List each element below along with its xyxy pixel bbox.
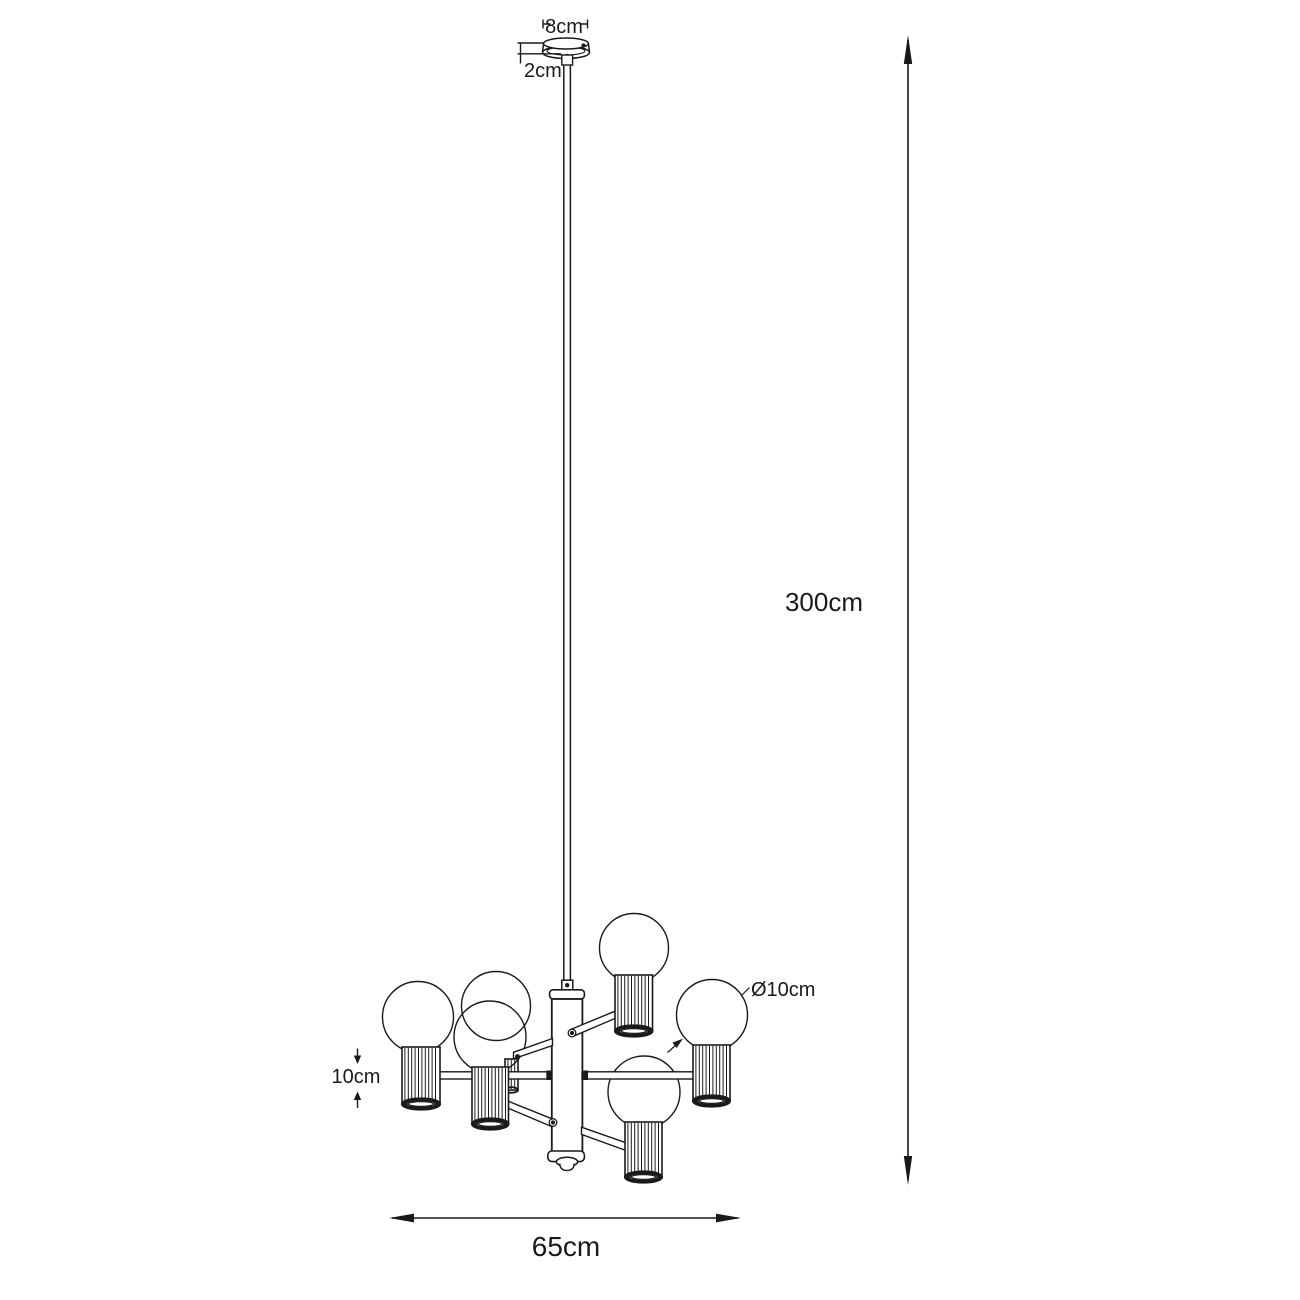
dim-300cm-arrow-up — [904, 35, 912, 64]
dim-65cm-label: 65cm — [532, 1231, 600, 1262]
arm-lower-pin — [551, 1120, 555, 1124]
technical-drawing-canvas: 8cm 2cm 300cm 65cm 10cm Ø10cm — [0, 0, 1300, 1300]
annotation-bulb-diameter: Ø10cm — [668, 979, 816, 1053]
shade-body — [693, 1045, 730, 1101]
suspension-rod — [564, 64, 571, 981]
central-body — [548, 980, 585, 1170]
dim-8cm-label: 8cm — [545, 16, 583, 38]
shade-top — [615, 975, 653, 1037]
shade-rim-inner — [700, 1099, 724, 1104]
shade-rim-inner — [409, 1102, 434, 1107]
body-tube — [552, 999, 583, 1152]
shade-body — [402, 1047, 440, 1104]
bulb-right — [677, 980, 748, 1051]
dim-2cm-label: 2cm — [524, 60, 562, 82]
dim-10cm-arrow-bottom — [354, 1092, 361, 1101]
arm-rear-pin — [515, 1054, 520, 1059]
dim-65cm-arrow-right — [716, 1214, 741, 1223]
dim-fixture-width: 65cm — [389, 1214, 741, 1262]
bulb-top — [600, 914, 669, 983]
dim-diameter-label: Ø10cm — [751, 979, 815, 1001]
dia-arrow-tail — [668, 1045, 677, 1053]
arm-lower-left — [506, 1100, 555, 1126]
shade-rim-inner — [479, 1122, 503, 1127]
bulb-front-left — [454, 1001, 526, 1073]
shade-far-left — [402, 1047, 440, 1110]
arm-right — [582, 1072, 694, 1079]
shade-rim-inner — [622, 1029, 647, 1034]
shade-body — [625, 1122, 662, 1177]
canopy-side-left — [543, 44, 544, 52]
dia-leader-line — [741, 988, 750, 997]
shade-body — [615, 975, 653, 1031]
dim-suspension-height: 300cm — [785, 35, 912, 1185]
pendant-lamp-dimension-diagram: 8cm 2cm 300cm 65cm 10cm Ø10cm — [0, 0, 1300, 1300]
dim-10cm-label: 10cm — [332, 1066, 381, 1088]
body-top-cap — [550, 990, 585, 999]
connector-screw — [565, 983, 569, 987]
shade-bottom — [625, 1122, 662, 1183]
shade-right — [693, 1045, 730, 1107]
canopy-cord-grip — [562, 55, 573, 65]
bulb-far-left — [383, 982, 454, 1053]
dim-10cm-arrow-top — [354, 1056, 361, 1065]
dim-300cm-label: 300cm — [785, 587, 863, 617]
canopy-top — [544, 38, 589, 49]
shade-rim-inner — [632, 1175, 656, 1180]
bulb-bottom — [608, 1056, 680, 1128]
shade-body — [472, 1067, 509, 1124]
canopy-screw-right — [581, 43, 585, 47]
arm-left-joint — [547, 1071, 553, 1081]
arm-upper-pin — [570, 1031, 574, 1035]
canopy-side-right — [589, 44, 590, 52]
arm-right-joint — [582, 1071, 589, 1081]
shade-front-left — [472, 1067, 509, 1130]
dim-shade-height: 10cm — [332, 1049, 381, 1109]
dim-300cm-arrow-down — [904, 1156, 912, 1185]
dim-65cm-arrow-left — [389, 1214, 414, 1223]
body-bottom-bump — [560, 1164, 574, 1171]
dim-canopy-diameter: 8cm — [543, 16, 588, 38]
